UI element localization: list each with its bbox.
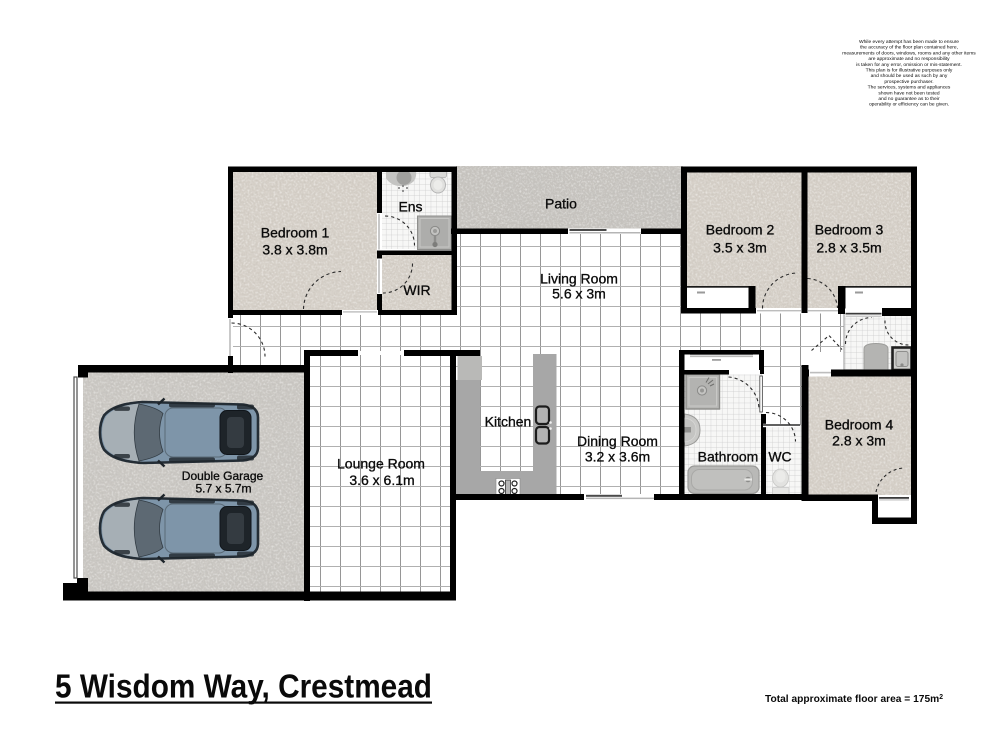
svg-text:WC: WC [768,449,791,465]
svg-text:3.8 x 3.8m: 3.8 x 3.8m [262,242,327,258]
svg-text:2.8 x 3m: 2.8 x 3m [832,433,886,449]
svg-text:Bedroom 4: Bedroom 4 [825,417,894,433]
svg-text:The services, systems and appl: The services, systems and appliances [868,85,951,91]
svg-text:Living Room: Living Room [540,271,618,287]
svg-text:3.2 x 3.6m: 3.2 x 3.6m [585,449,650,465]
svg-text:Total approximate floor area =: Total approximate floor area = 175m2 [765,693,943,705]
svg-text:Lounge Room: Lounge Room [337,456,425,472]
svg-text:is taken for any error, omissi: is taken for any error, omission or mis-… [856,62,962,68]
svg-text:operability or efficiency can: operability or efficiency can be given. [869,102,949,108]
svg-text:Bedroom 3: Bedroom 3 [815,222,884,238]
svg-text:5.6 x 3m: 5.6 x 3m [552,286,606,302]
svg-text:Bathroom: Bathroom [698,449,759,465]
svg-text:5 Wisdom Way, Crestmead: 5 Wisdom Way, Crestmead [55,669,432,706]
svg-text:and should be used as such by: and should be used as such by any [871,73,948,79]
svg-text:This plan is for illustrative: This plan is for illustrative purposes o… [866,68,953,74]
svg-text:and no guarantee as to their: and no guarantee as to their [878,96,940,102]
svg-text:Ens: Ens [398,199,422,215]
svg-text:Dining Room: Dining Room [577,433,658,449]
svg-text:WIR: WIR [403,282,430,298]
svg-text:prospective purchaser.: prospective purchaser. [884,79,933,85]
svg-text:Kitchen: Kitchen [485,414,532,430]
svg-text:are approximate and no respons: are approximate and no responsibility [868,56,950,62]
svg-text:5.7 x 5.7m: 5.7 x 5.7m [195,482,251,496]
svg-text:Patio: Patio [545,196,577,212]
svg-text:3.5 x 3m: 3.5 x 3m [713,240,767,256]
svg-text:3.6 x 6.1m: 3.6 x 6.1m [349,472,414,488]
svg-text:2.8 x 3.5m: 2.8 x 3.5m [816,240,881,256]
svg-text:Bedroom 2: Bedroom 2 [706,222,775,238]
svg-text:the accuracy of the floor plan: the accuracy of the floor plan contained… [860,45,958,51]
svg-text:measurements of doors, windows: measurements of doors, windows, rooms an… [842,50,976,56]
svg-text:Bedroom 1: Bedroom 1 [261,225,330,241]
svg-text:While every attempt has been m: While every attempt has been made to ens… [859,39,959,45]
svg-text:shown have not been tested: shown have not been tested [878,90,939,96]
